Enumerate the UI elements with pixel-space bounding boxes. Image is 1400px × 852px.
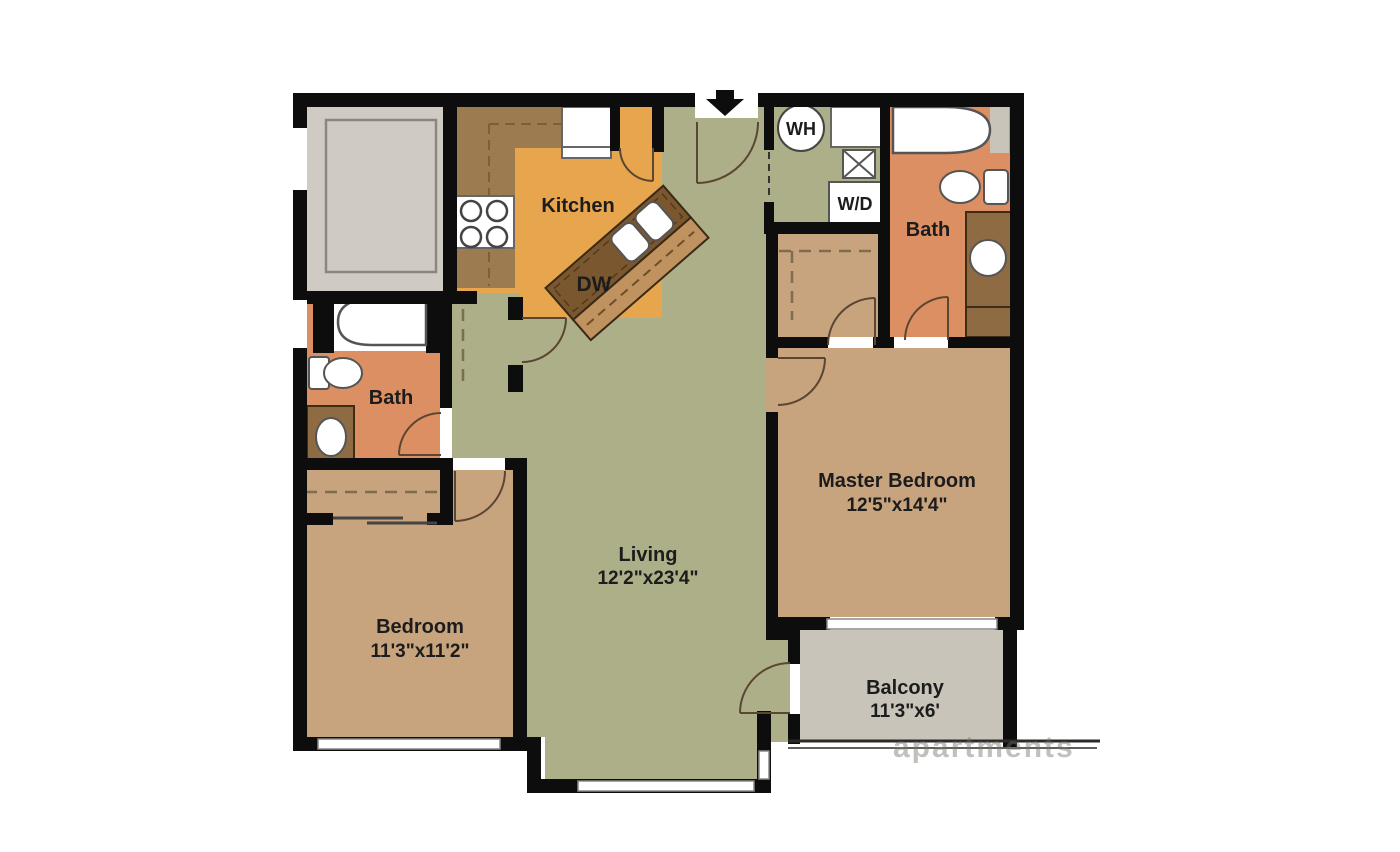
bath-niche [990,106,1009,153]
bedroom-area [307,470,513,737]
living-bay-area [545,737,760,785]
kitchen-label: Kitchen [541,195,614,217]
dishwasher-label: DW [577,273,612,296]
living-window [578,781,754,791]
floor-plan-canvas: Kitchen Living 12'2"x23'4" Master Bedroo… [0,0,1400,852]
bedroom-window [318,739,500,749]
wall-patio-right [443,93,457,304]
patio-opening [293,128,307,190]
wall-pantry-left [610,103,620,151]
wall-pantry-right [652,103,664,152]
master-closet-area [766,234,890,337]
living-label: Living [619,544,678,566]
wall-balcony-left-upper [788,628,800,664]
wall-hall-stub-upper [508,297,523,320]
master-bedroom-label: Master Bedroom [818,470,976,492]
bath-label: Bath [369,387,413,409]
wall-bedroom-closet-left [293,513,333,525]
wall-laundry-left-upper [764,106,774,152]
wall-bath-bedroom [293,458,453,470]
sink-icon [970,240,1006,276]
master-bath-label: Bath [906,219,950,241]
refrigerator-icon [562,107,611,158]
wall-patio-bottom [293,291,477,304]
wall-bath-bottom [948,337,1012,348]
wall-top-left [293,93,695,107]
wall-top-right [758,93,1024,107]
wall-laundry-bottom [764,222,888,234]
wall-bedroom-door-stub [505,458,527,470]
wall-laundry-bath [880,103,890,234]
wall-left [293,93,307,128]
bathtub-icon [893,107,990,153]
living-dimensions: 12'2"x23'4" [597,568,698,589]
patio-area [307,103,443,291]
bedroom-dimensions: 11'3"x11'2" [371,641,470,662]
wall-bath-right [440,304,452,408]
wall-left [293,190,307,300]
bath-window-gap [293,300,307,348]
balcony-label: Balcony [866,677,945,699]
floor-plan-drawing: Kitchen Living 12'2"x23'4" Master Bedroo… [0,0,1400,852]
washer-dryer-label: W/D [838,194,873,214]
wall-living-master-lower [766,412,778,628]
wall-balcony-right [1003,626,1017,747]
toilet-icon [940,171,980,203]
toilet-icon [324,358,362,388]
laundry-counter [831,107,883,147]
balcony-dimensions: 11'3"x6' [870,701,940,722]
wall-hall-stub-lower [508,365,523,392]
bathtub-icon [338,299,426,345]
wall-closet-bath [878,234,890,348]
toilet-tank [984,170,1008,204]
laundry-door-dashed [764,150,774,202]
wall-right [1010,93,1024,630]
water-heater-label: WH [786,119,816,139]
living-side-window [759,751,769,779]
wall-bedroom-right [513,458,527,751]
master-bedroom-dimensions: 12'5"x14'4" [846,495,947,516]
balcony-sliding-window [827,619,997,629]
watermark: apartments [893,731,1075,764]
wall-left [293,348,307,751]
sink-icon [316,418,346,456]
bedroom-label: Bedroom [376,616,464,638]
wall-bath-bottom-stub [888,337,894,348]
wall-living-master-upper [766,230,778,358]
